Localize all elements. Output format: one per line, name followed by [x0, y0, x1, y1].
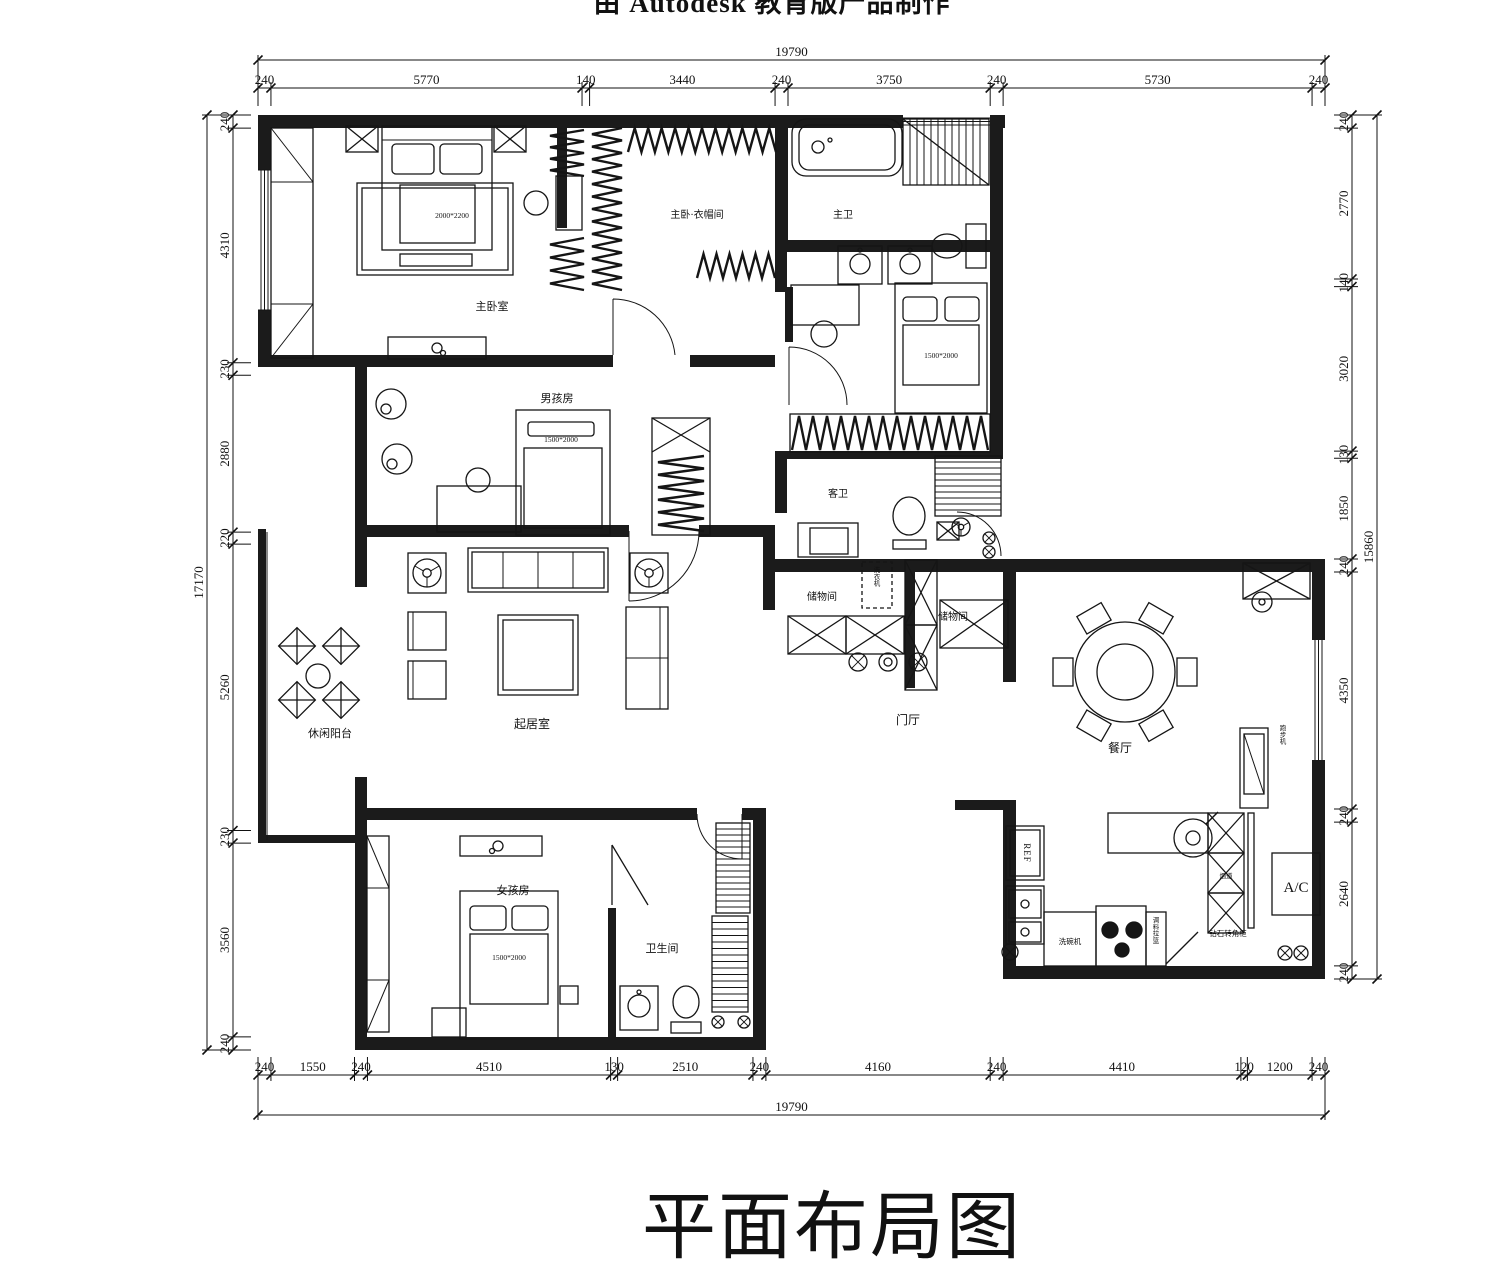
svg-text:230: 230 [217, 359, 232, 379]
svg-text:5730: 5730 [1145, 72, 1171, 87]
room-label-storage-1: 储物间 [807, 590, 837, 603]
svg-text:5260: 5260 [217, 674, 232, 700]
room-label-storage-2: 储物间 [938, 610, 968, 623]
svg-text:2770: 2770 [1336, 191, 1351, 217]
svg-text:5770: 5770 [413, 72, 439, 87]
room-label-master-bath: 主卫 [833, 209, 853, 221]
autodesk-watermark: 由 Autodesk 教育版产品制作 [593, 0, 950, 18]
svg-text:240: 240 [987, 72, 1007, 87]
room-label-master-closet: 主卧·衣帽间 [670, 208, 723, 221]
svg-text:240: 240 [750, 1059, 770, 1074]
room-label-balcony: 休闲阳台 [308, 726, 352, 740]
svg-text:4410: 4410 [1109, 1059, 1135, 1074]
svg-text:3440: 3440 [669, 72, 695, 87]
room-label-boys-room: 男孩房 [541, 392, 574, 405]
room-label-master-bedroom: 主卧室 [476, 299, 509, 313]
plan-title: 平面布局图 [642, 1187, 1022, 1269]
svg-text:2510: 2510 [672, 1059, 698, 1074]
svg-text:3020: 3020 [1336, 356, 1351, 382]
svg-text:240: 240 [351, 1059, 371, 1074]
svg-text:240: 240 [1309, 72, 1329, 87]
svg-text:19790: 19790 [775, 1099, 808, 1114]
master-bed-size-label: 2000*2200 [435, 211, 469, 220]
furniture [271, 119, 1320, 1039]
svg-text:3750: 3750 [876, 72, 902, 87]
room-label-living-room: 起居室 [514, 716, 550, 731]
corner-cabinet-label: 钻石转角柜 [1209, 928, 1247, 938]
svg-text:240: 240 [1336, 556, 1351, 576]
washing-machine-label: 洗衣机 [874, 565, 881, 588]
dishwasher-label: 洗碗机 [1059, 936, 1082, 946]
svg-text:4160: 4160 [865, 1059, 891, 1074]
room-label-guest-bath: 客卫 [828, 487, 848, 500]
svg-text:1850: 1850 [1336, 496, 1351, 522]
boys-bed-size-label: 1500*2000 [544, 435, 578, 444]
svg-text:140: 140 [576, 72, 596, 87]
svg-text:240: 240 [255, 1059, 275, 1074]
svg-text:3560: 3560 [217, 927, 232, 953]
svg-text:19790: 19790 [775, 44, 808, 59]
treadmill-label: 跑步机 [1280, 723, 1287, 746]
svg-text:2880: 2880 [217, 441, 232, 467]
svg-text:4310: 4310 [217, 232, 232, 258]
room-label-bathroom: 卫生间 [646, 941, 679, 955]
svg-text:240: 240 [1336, 112, 1351, 132]
spice-basket-label: 调料拉篮 [1153, 915, 1160, 944]
svg-text:220: 220 [217, 528, 232, 548]
svg-text:1200: 1200 [1267, 1059, 1293, 1074]
fridge-label: REF [1022, 843, 1032, 863]
svg-text:2640: 2640 [1336, 881, 1351, 907]
room-label-dining-room: 餐厅 [1108, 740, 1132, 755]
svg-text:130: 130 [604, 1059, 624, 1074]
svg-text:240: 240 [217, 1034, 232, 1054]
svg-text:240: 240 [217, 112, 232, 132]
svg-text:240: 240 [772, 72, 792, 87]
svg-text:240: 240 [1336, 806, 1351, 826]
svg-text:1550: 1550 [300, 1059, 326, 1074]
svg-text:240: 240 [987, 1059, 1007, 1074]
svg-text:120: 120 [1234, 1059, 1254, 1074]
bed2-size-label: 1500*2000 [924, 351, 958, 360]
svg-text:240: 240 [255, 72, 275, 87]
svg-text:17170: 17170 [191, 566, 206, 599]
walls [258, 115, 1325, 1050]
ac-label: A/C [1283, 880, 1308, 896]
svg-text:140: 140 [1336, 273, 1351, 293]
girls-bed-size-label: 1500*2000 [492, 953, 526, 962]
svg-text:130: 130 [1336, 445, 1351, 465]
floor-plan-drawing: 2405770140344024037502405730240197902401… [0, 0, 1500, 1280]
svg-text:15860: 15860 [1361, 531, 1376, 564]
svg-text:240: 240 [1309, 1059, 1329, 1074]
floor-plan-page: 2405770140344024037502405730240197902401… [0, 0, 1500, 1280]
windows [258, 115, 1325, 840]
room-label-foyer: 门厅 [896, 712, 920, 727]
svg-text:4350: 4350 [1336, 678, 1351, 704]
room-label-girls-room: 女孩房 [497, 883, 530, 897]
flue-label: 烟道 [1220, 871, 1234, 880]
svg-text:230: 230 [217, 827, 232, 847]
svg-text:240: 240 [1336, 963, 1351, 983]
svg-text:4510: 4510 [476, 1059, 502, 1074]
